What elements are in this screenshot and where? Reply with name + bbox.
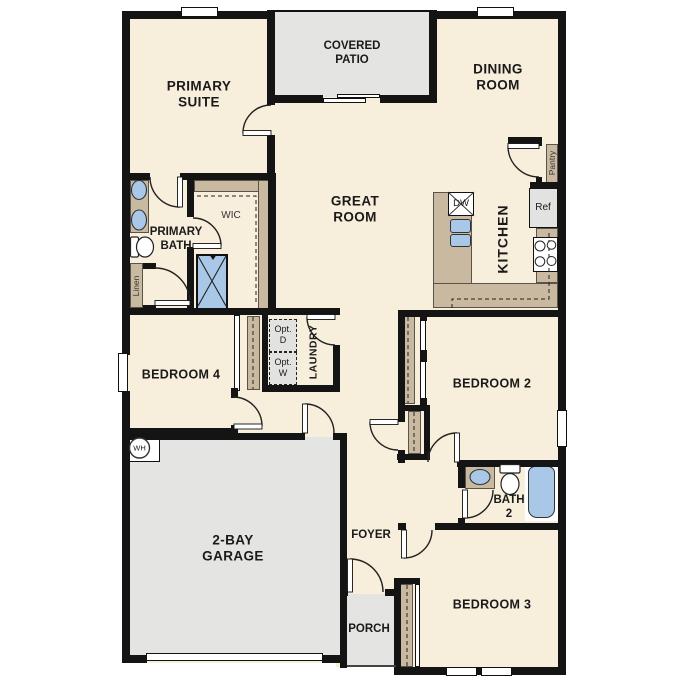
patio-wall: [267, 95, 323, 103]
fixture-label-pantry: Pantry: [547, 151, 557, 176]
room-label-laundry: LAUNDRY: [308, 325, 321, 379]
room-label-bath2: BATH2: [493, 493, 524, 521]
patio-wall: [380, 95, 437, 103]
fixture-label-opt-dryer: Opt.D: [274, 324, 291, 346]
wic-shelf-top: [194, 180, 268, 192]
room-label-primary-suite: PRIMARYSUITE: [167, 79, 232, 112]
window: [118, 353, 128, 392]
interior-wall: [262, 315, 268, 392]
porch-wall: [385, 589, 398, 596]
interior-wall: [187, 178, 194, 217]
exterior-wall: [512, 667, 566, 675]
interior-wall: [122, 173, 150, 180]
room-label-bedroom3: BEDROOM 3: [453, 597, 531, 612]
bathtub: [528, 466, 555, 518]
kitchen-bottom-counter: [433, 283, 558, 308]
patio-slider-door: [337, 94, 380, 99]
garage-door: [146, 653, 323, 661]
interior-wall: [536, 137, 542, 146]
interior-wall: [231, 388, 238, 398]
interior-wall: [122, 308, 340, 315]
interior-wall: [180, 173, 275, 180]
interior-wall: [458, 463, 465, 488]
stove-box: [533, 237, 558, 272]
window: [477, 7, 514, 17]
interior-wall: [398, 523, 406, 530]
room-label-garage: 2-BAYGARAGE: [202, 533, 264, 566]
room-label-covered-patio: COVEREDPATIO: [324, 39, 381, 67]
room-label-bedroom4: BEDROOM 4: [142, 367, 220, 382]
bedroom3-closet-doors: [415, 584, 420, 667]
window: [557, 410, 567, 447]
exterior-wall: [558, 446, 566, 675]
interior-wall: [530, 182, 558, 188]
exterior-wall: [122, 655, 147, 663]
garage-wall: [340, 433, 347, 668]
interior-wall: [187, 247, 194, 315]
interior-wall: [435, 523, 558, 530]
bedroom4-closet-doors: [234, 315, 240, 391]
exterior-wall: [398, 667, 447, 675]
interior-wall: [420, 350, 427, 362]
interior-wall: [267, 11, 275, 105]
kitchen-sink-basin-bottom: [450, 234, 471, 247]
interior-wall: [268, 173, 276, 315]
room-label-wic: WIC: [221, 210, 240, 222]
room-label-dining-room: DININGROOM: [473, 62, 523, 95]
room-label-kitchen: KITCHEN: [494, 204, 511, 273]
shower: [196, 254, 228, 310]
bedroom3-closet-shelf: [400, 584, 413, 667]
fixture-label-opt-washer: Opt.W: [274, 357, 291, 379]
interior-wall: [457, 460, 558, 467]
room-label-primary-bath: PRIMARYBATH: [150, 225, 203, 253]
garage-wall: [122, 433, 305, 440]
interior-wall: [424, 405, 430, 460]
patio-wall: [429, 11, 437, 101]
interior-wall: [262, 385, 340, 392]
fixture-label-water-heater: WH: [133, 443, 146, 452]
bedroom4-closet-shelf: [247, 316, 260, 390]
window: [181, 7, 218, 17]
floor-plan: COVEREDPATIO PRIMARYSUITE DININGROOM GRE…: [0, 0, 687, 687]
exterior-wall: [122, 11, 130, 355]
fixture-label-ref: Ref: [535, 202, 551, 214]
exterior-ground: [100, 663, 336, 687]
interior-wall: [420, 310, 427, 321]
window: [481, 667, 512, 676]
kitchen-sink-basin-top: [450, 219, 471, 233]
interior-wall: [394, 578, 420, 584]
interior-wall: [143, 263, 156, 269]
patio-slider-door: [323, 98, 366, 103]
room-label-bedroom2: BEDROOM 2: [453, 376, 531, 391]
fixture-label-linen: Linen: [131, 276, 141, 297]
bath2-vanity-counter: [465, 466, 495, 489]
room-label-foyer: FOYER: [351, 528, 391, 542]
interior-wall: [397, 454, 430, 460]
room-label-great-room: GREATROOM: [331, 194, 379, 227]
room-label-porch: PORCH: [348, 622, 390, 636]
exterior-wall: [558, 11, 566, 413]
fixture-label-dw: DW: [453, 198, 469, 210]
window: [446, 667, 477, 676]
patio-edge-line: [267, 10, 437, 12]
hall-closet-shelf: [408, 411, 421, 454]
primary-vanity-counter: [130, 180, 149, 233]
exterior-wall: [322, 655, 340, 663]
porch-edge-line: [345, 665, 396, 667]
